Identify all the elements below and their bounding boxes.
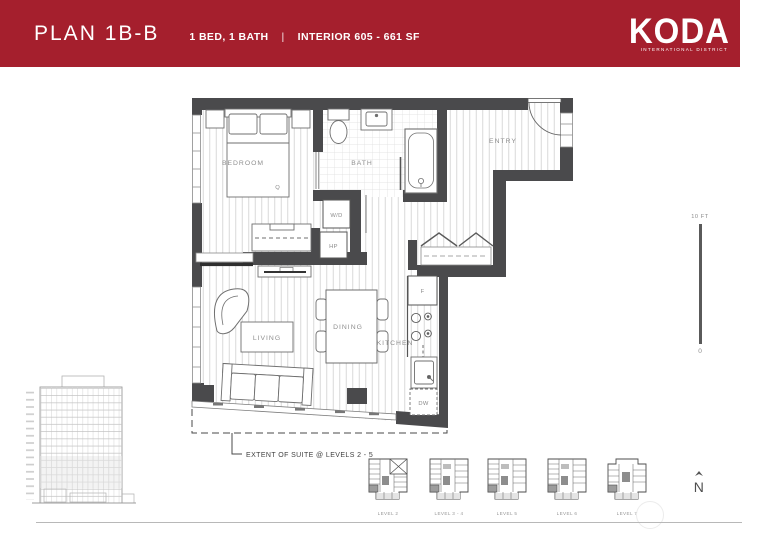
fridge: F <box>408 276 437 305</box>
svg-text:DW: DW <box>418 401 428 407</box>
washer-dryer: W/D <box>323 200 350 228</box>
extent-note: EXTENT OF SUITE @ LEVELS 2 - 5 <box>246 452 373 459</box>
north-caret-icon <box>695 471 703 476</box>
key-plan-level-5: LEVEL 5 <box>488 459 526 516</box>
low-cabinet <box>196 253 253 266</box>
plan-specs: 1 BED, 1 BATH | INTERIOR 605 - 661 SF <box>189 31 419 43</box>
plan-title: PLAN 1B-B <box>34 22 159 46</box>
sofa <box>221 364 313 406</box>
bathtub <box>405 129 437 193</box>
north-label: N <box>694 479 705 495</box>
spec-divider: | <box>282 31 285 43</box>
bedroom-label: BEDROOM <box>222 160 264 167</box>
dining-label: DINING <box>333 324 363 331</box>
svg-text:LEVEL 5: LEVEL 5 <box>497 511 518 516</box>
floor-plan-drawing: Q BEDROOM <box>170 85 590 465</box>
koda-logo: KODA INTERNATIONAL DISTRICT <box>629 14 730 53</box>
building-elevation <box>26 360 138 516</box>
nightstand-left <box>206 110 224 128</box>
scale-top-label: 10 FT <box>681 214 719 220</box>
key-plan-level-2: LEVEL 2 <box>369 459 407 516</box>
footer-rule <box>36 522 742 523</box>
bath-label: BATH <box>351 160 373 167</box>
spec-bed-bath: 1 BED, 1 BATH <box>189 31 268 43</box>
dishwasher: DW <box>410 389 437 415</box>
entry-label: ENTRY <box>489 138 517 145</box>
level-key-plans: LEVEL 2 LEVEL 3 - 4 LEVEL 5 <box>358 456 660 520</box>
bath-sink <box>361 109 392 130</box>
svg-text:LEVEL 2: LEVEL 2 <box>378 511 399 516</box>
scale-bar-line <box>699 224 702 344</box>
entry-window <box>561 113 573 147</box>
bed <box>225 109 291 197</box>
scale-bar: 10 FT 0 <box>681 214 719 355</box>
spec-interior: INTERIOR 605 - 661 SF <box>298 31 420 43</box>
watermark-circle <box>636 501 664 529</box>
living-label: LIVING <box>253 335 281 342</box>
tv-console <box>258 266 311 277</box>
queen-bed-label: Q <box>275 185 280 191</box>
kitchen-sink <box>411 357 437 388</box>
svg-text:HP: HP <box>329 244 338 250</box>
header-bar: PLAN 1B-B 1 BED, 1 BATH | INTERIOR 605 -… <box>0 0 740 67</box>
extent-leader <box>232 433 242 454</box>
key-plan-level-3-4: LEVEL 3 - 4 <box>430 459 468 516</box>
svg-text:W/D: W/D <box>330 213 342 219</box>
svg-text:LEVEL 6: LEVEL 6 <box>557 511 578 516</box>
dresser <box>252 224 311 251</box>
floorplan-page: PLAN 1B-B 1 BED, 1 BATH | INTERIOR 605 -… <box>0 0 768 533</box>
key-plan-level-6: LEVEL 6 <box>548 459 586 516</box>
svg-text:F: F <box>421 289 425 295</box>
toilet <box>328 109 349 144</box>
heat-pump: HP <box>320 232 347 258</box>
koda-logo-text: KODA <box>629 13 730 49</box>
bedroom-pocket-door <box>315 152 320 190</box>
north-arrow: N <box>687 468 711 503</box>
svg-text:LEVEL 3 - 4: LEVEL 3 - 4 <box>435 511 464 516</box>
scale-zero-label: 0 <box>681 348 719 355</box>
svg-text:LEVEL 7: LEVEL 7 <box>617 511 638 516</box>
nightstand-right <box>292 110 310 128</box>
